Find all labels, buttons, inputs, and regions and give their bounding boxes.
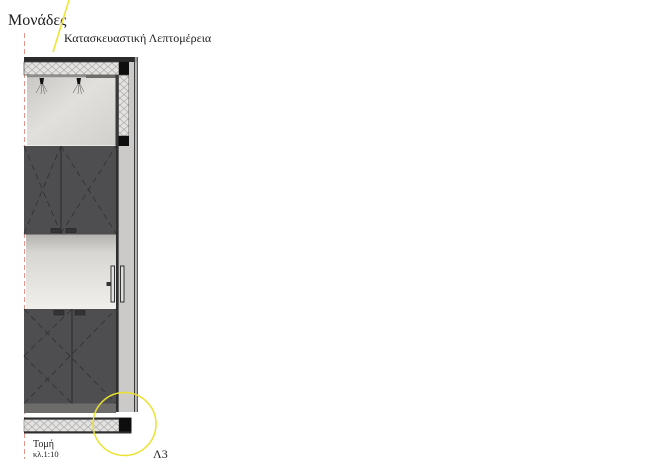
svg-text:κλ.1:10: κλ.1:10 xyxy=(33,449,59,459)
svg-text:Μονάδες: Μονάδες xyxy=(8,12,67,29)
svg-text:Κατασκευαστική Λεπτομέρεια: Κατασκευαστική Λεπτομέρεια xyxy=(64,31,212,45)
svg-text:Λ3: Λ3 xyxy=(153,447,168,461)
